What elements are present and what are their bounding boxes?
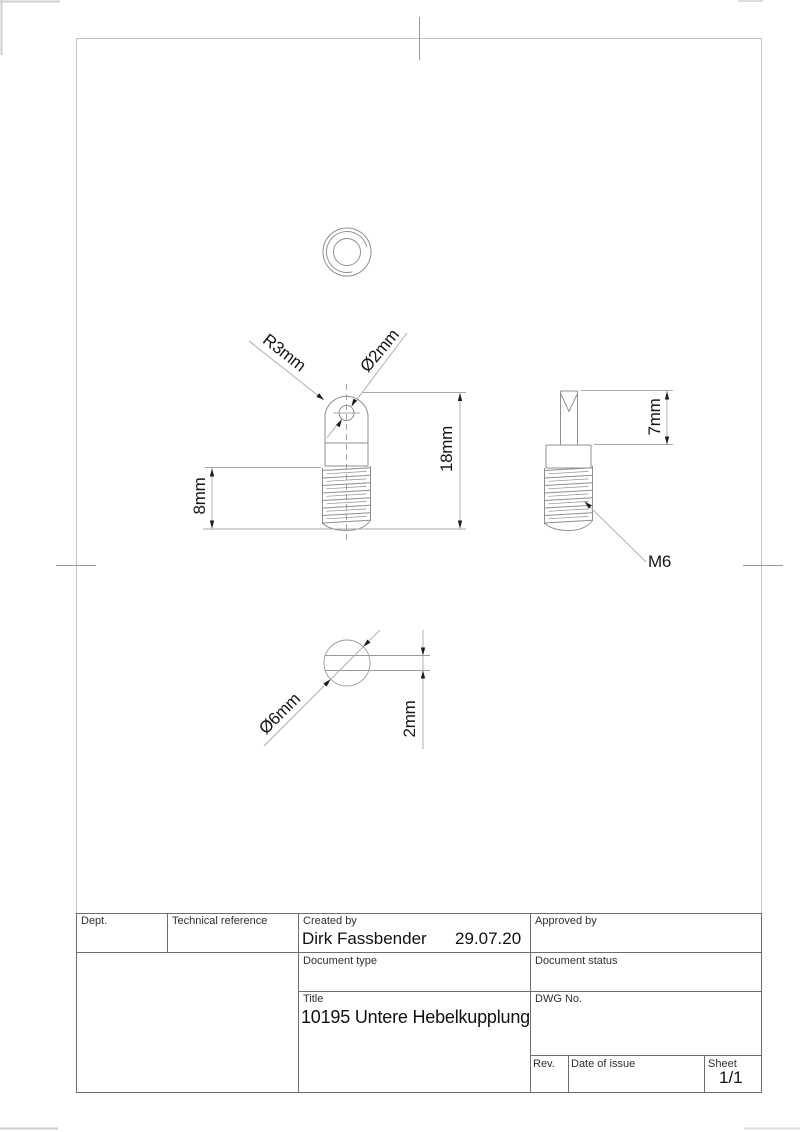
document-type-label: Document type bbox=[303, 955, 377, 967]
arrow-down-icon bbox=[665, 437, 669, 445]
side-block bbox=[546, 445, 591, 468]
dimension-8mm bbox=[205, 468, 321, 530]
date-of-issue-label: Date of issue bbox=[571, 1058, 635, 1070]
dwg-no-label: DWG No. bbox=[535, 993, 582, 1005]
front-view bbox=[323, 384, 371, 542]
arrow-up-icon bbox=[458, 393, 462, 401]
trim-mark-top-left bbox=[0, 0, 60, 55]
arrow-up-icon bbox=[421, 671, 425, 679]
dimension-2mm bbox=[421, 630, 425, 749]
arrow-down-icon bbox=[210, 521, 214, 529]
arrow-down-icon bbox=[421, 648, 425, 656]
arrow-up-icon bbox=[210, 469, 214, 477]
technical-drawing-sheet: { "colors": { "part_line": "#8f8f8f", "d… bbox=[0, 0, 800, 1132]
side-view bbox=[545, 391, 593, 531]
created-by-label: Created by bbox=[303, 915, 357, 927]
dimension-label-8mm: 8mm bbox=[190, 478, 210, 515]
technical-reference-label: Technical reference bbox=[172, 915, 267, 927]
top-view-outer-circle bbox=[323, 228, 371, 276]
bottom-tab-edges bbox=[325, 656, 430, 671]
top-view-inner-circle bbox=[334, 239, 361, 266]
dimension-label-18mm: 18mm bbox=[437, 426, 457, 472]
created-date-value: 29.07.20 bbox=[455, 929, 521, 949]
side-threads bbox=[545, 466, 593, 531]
arrow-up-icon bbox=[665, 392, 669, 400]
bottom-view bbox=[324, 640, 430, 686]
drawing-title-value: 10195 Untere Hebelkupplung bbox=[301, 1007, 530, 1028]
top-view bbox=[323, 228, 371, 276]
arrow-down-right-icon bbox=[316, 393, 324, 400]
approved-by-label: Approved by bbox=[535, 915, 597, 927]
page-frame bbox=[0, 0, 800, 1129]
sheet-value: 1/1 bbox=[719, 1068, 743, 1088]
drawing-canvas bbox=[0, 0, 800, 1132]
thread-spec-label-m6: M6 bbox=[648, 552, 671, 572]
dimension-d6mm bbox=[264, 630, 380, 746]
document-status-label: Document status bbox=[535, 955, 618, 967]
dimension-label-7mm: 7mm bbox=[645, 399, 665, 436]
side-stem-notch bbox=[561, 395, 577, 412]
created-by-value: Dirk Fassbender bbox=[302, 929, 427, 949]
rev-label: Rev. bbox=[533, 1058, 555, 1070]
title-label: Title bbox=[303, 993, 323, 1005]
arrow-up-right-icon bbox=[336, 419, 342, 427]
dimension-m6-leader bbox=[585, 502, 647, 563]
dimension-label-2mm: 2mm bbox=[400, 701, 420, 738]
dept-label: Dept. bbox=[81, 915, 107, 927]
arrow-down-icon bbox=[458, 521, 462, 529]
